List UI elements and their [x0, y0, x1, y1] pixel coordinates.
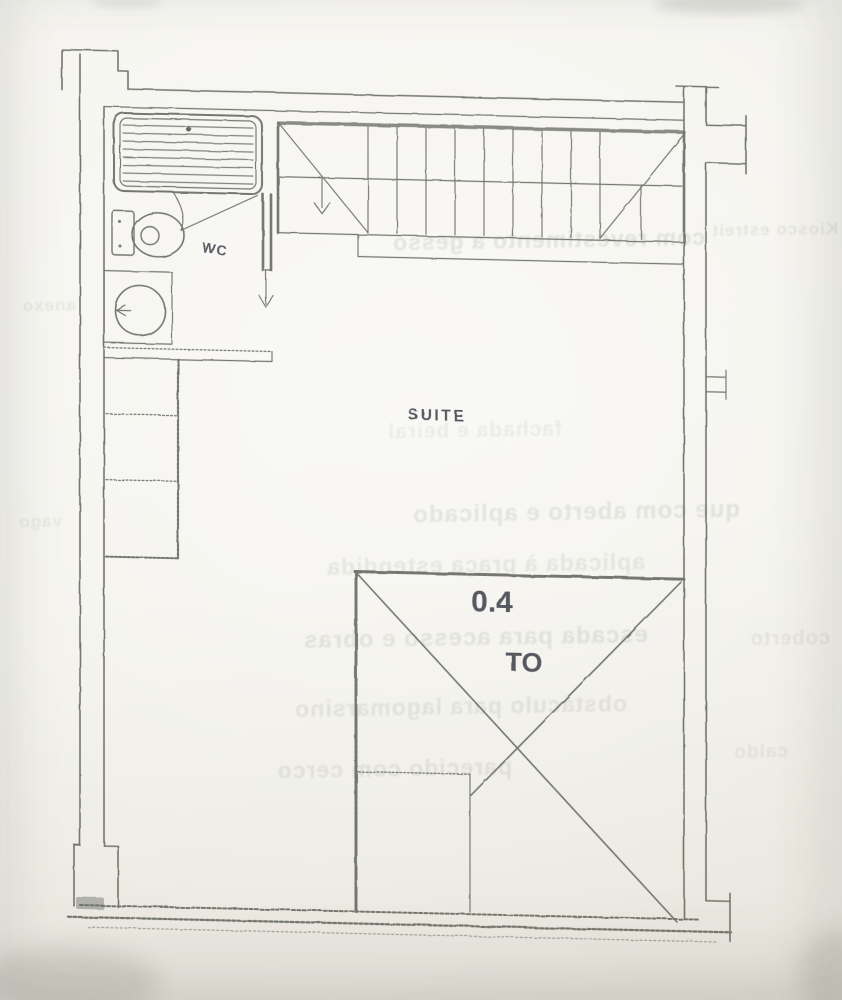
wall-notch: [706, 370, 726, 399]
stair-center-line: [280, 177, 682, 186]
shower-tray-icon: [114, 113, 262, 194]
storage-box: [358, 772, 470, 913]
top-wall-outer: [128, 89, 684, 102]
void-opening: [355, 571, 684, 922]
pier-column-top-right: [676, 86, 746, 174]
right-wall-foot: [706, 893, 730, 942]
toilet-icon: [112, 211, 184, 258]
staircase: [278, 123, 684, 265]
void-to-label: TO: [505, 647, 542, 678]
entry-direction-arrow: [259, 270, 273, 307]
vanity-counter: [104, 348, 272, 362]
wardrobe-cabinet: [104, 358, 178, 559]
exterior-walls: [62, 50, 746, 943]
floor-plan-drawing: SUITE WC 0.4 TO: [0, 0, 842, 1000]
stair-treads: [368, 127, 600, 238]
pier-column-bottom-left: [74, 845, 118, 910]
bathroom: [104, 113, 273, 347]
void-x-marker: [358, 575, 681, 923]
top-wall-inner: [104, 107, 684, 121]
stair-top-edge: [278, 123, 684, 133]
wall-stub: [263, 194, 271, 270]
void-top-edge: [355, 571, 684, 579]
wc-room-label: WC: [201, 239, 228, 259]
stair-bottom-edge: [278, 233, 684, 243]
wc-door: [174, 193, 258, 232]
scanned-floorplan-page: com revestimento a gesso Kiosco estreito…: [0, 0, 842, 1000]
pier-column-top-left: [62, 50, 128, 92]
void-dimension-label: 0.4: [471, 585, 513, 619]
suite-room-label: SUITE: [408, 407, 466, 425]
stair-landing-edge: [358, 235, 683, 265]
scan-smudge: [655, 0, 805, 14]
washbasin-icon: [104, 271, 172, 345]
door-leaf: [181, 193, 258, 232]
bottom-wall: [68, 905, 731, 943]
